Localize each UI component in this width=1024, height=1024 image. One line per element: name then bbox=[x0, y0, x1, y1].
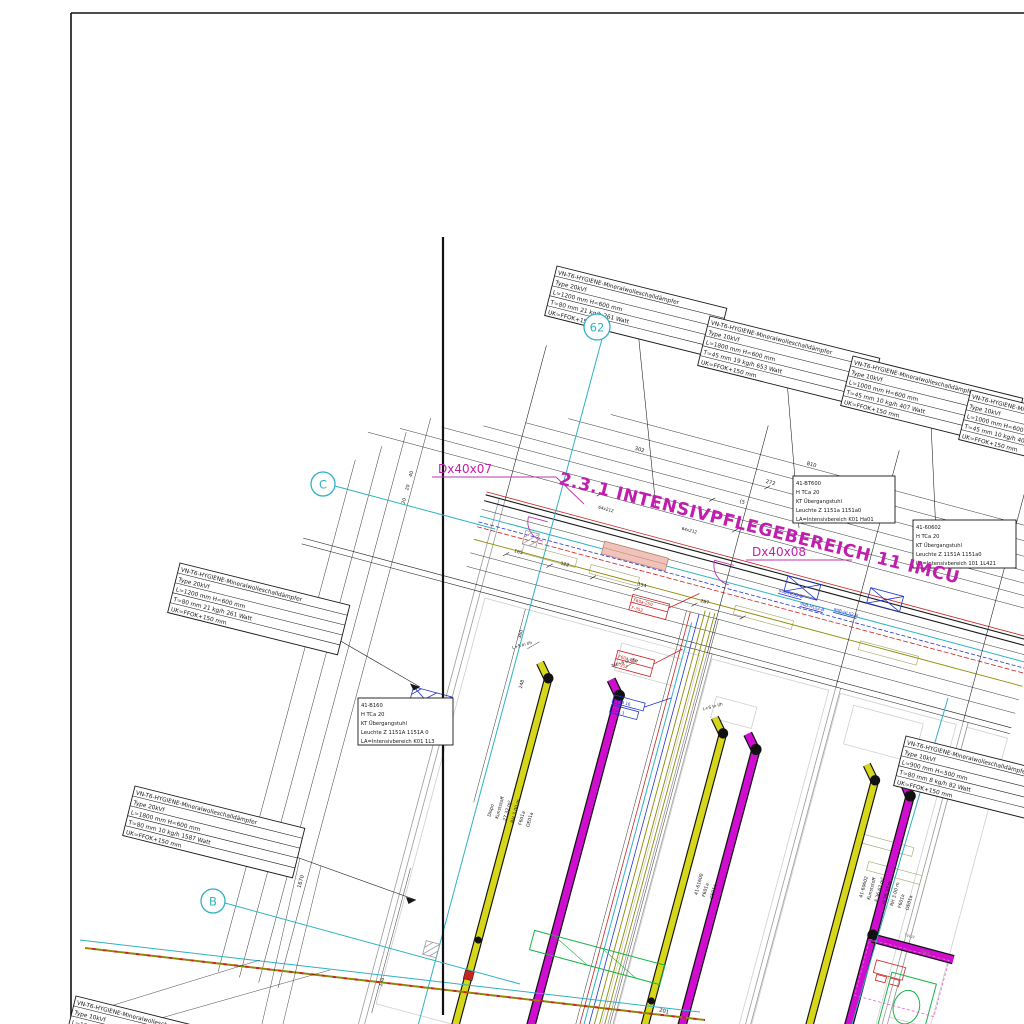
silencer-box-bottomleft: VN-T6-HYGIENE-Mineralwolleschalldämpfer … bbox=[64, 996, 246, 1024]
grid-bubble-62: 62 bbox=[584, 314, 610, 340]
heating-element bbox=[601, 541, 668, 571]
equipment-line: H TCa 20 bbox=[916, 534, 939, 540]
grid-bubble-label: 62 bbox=[590, 321, 605, 335]
equipment-line: KT Übergangstuhl bbox=[796, 498, 842, 505]
equipment-line: 41-B160 bbox=[361, 703, 383, 709]
equipment-line: KT Übergangstuhl bbox=[361, 720, 407, 727]
air-diffuser-icon bbox=[867, 588, 904, 612]
duct-tag-text: Dx40x08 bbox=[752, 545, 806, 559]
pipe-note-line: F601a bbox=[897, 893, 907, 908]
pipe-note-line: OE01a bbox=[525, 812, 535, 828]
plan-canvas: 302 810 272 (5 165 122 154 287 40 20 20 … bbox=[0, 0, 1024, 1024]
dim-165: 165 bbox=[513, 548, 523, 556]
dim-810: 810 bbox=[806, 461, 817, 469]
dim-248: 248 bbox=[518, 679, 526, 689]
equipment-box-1: 41-BT600 H TCa 20 KT Übergangstuhl Leuch… bbox=[793, 476, 895, 523]
pipes bbox=[427, 661, 1000, 1024]
equipment-line: Leuchte Z 1151a 1151a0 bbox=[796, 508, 861, 514]
dim-302: 302 bbox=[634, 446, 645, 454]
red-tag-box-3 bbox=[871, 960, 905, 987]
equipment-line: 41-60602 bbox=[916, 525, 941, 531]
grid-bubble-B: B bbox=[201, 889, 225, 913]
equipment-line: LA=Intensivbereich K01 Ha01 bbox=[796, 517, 874, 523]
silencer-box-top4: VN-T6-HYGIENE-Mineralwolleschalldämpfer … bbox=[959, 390, 1024, 482]
grid-bubble-label: C bbox=[319, 478, 327, 492]
dim-40: 40 bbox=[408, 470, 415, 477]
equipment-line: H TCa 20 bbox=[361, 712, 384, 718]
equipment-box-3: 41-B160 H TCa 20 KT Übergangstuhl Leucht… bbox=[358, 698, 453, 745]
equipment-line: Leuchte Z 1151A 1151A 0 bbox=[361, 730, 429, 736]
grid-bubble-label: B bbox=[209, 895, 217, 909]
dimension-lines bbox=[223, 355, 1024, 1024]
dim-20a: 20 bbox=[404, 484, 411, 491]
dim-1670: 1670 bbox=[297, 875, 306, 889]
equipment-line: Leuchte Z 1151A 1151a0 bbox=[916, 552, 982, 558]
duct-size-a: 64x212 bbox=[598, 504, 615, 513]
duct-link-text: 90B-HLS2-B bbox=[800, 601, 825, 612]
dim-287: 287 bbox=[700, 598, 710, 606]
grid-bubble-C: C bbox=[311, 472, 335, 496]
silencer-box-left1: VN-T6-HYGIENE-Mineralwolleschalldämpfer … bbox=[168, 563, 350, 655]
dim-5: (5 bbox=[739, 499, 746, 506]
duct-link-text: 90B-HLS2-B bbox=[833, 607, 858, 618]
grid-bubbles: 62 C B bbox=[201, 314, 610, 984]
silencer-box-top1: VN-T6-HYGIENE-Mineralwolleschalldämpfer … bbox=[545, 266, 727, 358]
duct-tag-text: Dx40x07 bbox=[438, 462, 492, 476]
flag-text: L+S In l/h bbox=[512, 640, 533, 650]
yellow-pipe-2 bbox=[604, 718, 732, 1024]
silencer-box-left2: VN-T6-HYGIENE-Mineralwolleschalldämpfer … bbox=[123, 786, 305, 878]
equipment-line: 41-BT600 bbox=[796, 481, 821, 487]
pipe-note-line: F601a bbox=[701, 882, 711, 897]
hatched-column-icon bbox=[423, 941, 440, 958]
duct-size-b: 64x212 bbox=[681, 526, 698, 535]
equipment-line: H TCa 20 bbox=[796, 490, 819, 496]
equipment-line: LA=Intensivbereich K01 1L3 bbox=[361, 739, 435, 745]
red-tag-box-2: F60a-250 F-352 bbox=[614, 633, 683, 683]
equipment-line: KT Übergangstuhl bbox=[916, 542, 962, 549]
pipe-note-line: F601a bbox=[517, 810, 527, 825]
tww-label: TWW bbox=[903, 932, 916, 940]
toilet-fixture-green bbox=[877, 972, 936, 1024]
gridline-62 bbox=[417, 340, 602, 1024]
dim-154: 154 bbox=[637, 581, 647, 589]
dim-272: 272 bbox=[765, 479, 776, 487]
bottom-strip-lines bbox=[78, 858, 705, 1024]
dim-122: 122 bbox=[560, 561, 570, 569]
room-title: 2.3.1 INTENSIVPFLEGEBEREICH 11 IMCU bbox=[557, 469, 962, 588]
pipe-note-line: Dispo bbox=[487, 803, 496, 817]
